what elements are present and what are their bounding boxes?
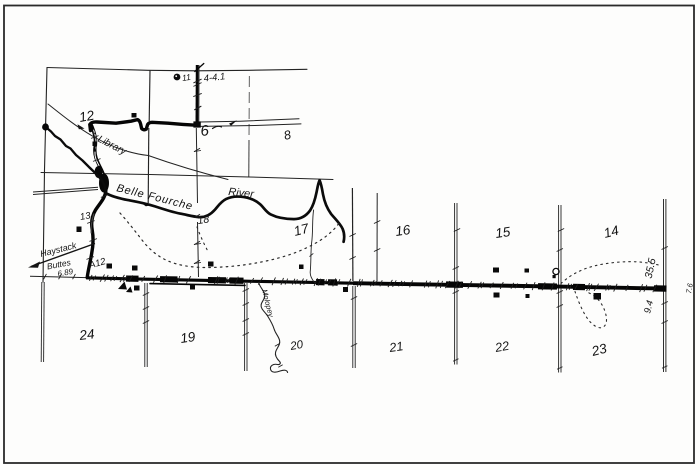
svg-text:11: 11 [181,72,191,83]
svg-text:19: 19 [179,329,196,346]
svg-text:12: 12 [78,107,96,124]
svg-text:22: 22 [493,339,510,355]
svg-text:18: 18 [197,213,210,227]
svg-text:16: 16 [394,222,411,239]
svg-text:15: 15 [494,224,511,241]
svg-text:24: 24 [78,326,96,343]
svg-text:4-4.1: 4-4.1 [203,71,226,84]
svg-text:21: 21 [387,339,404,355]
svg-text:20: 20 [288,339,304,353]
